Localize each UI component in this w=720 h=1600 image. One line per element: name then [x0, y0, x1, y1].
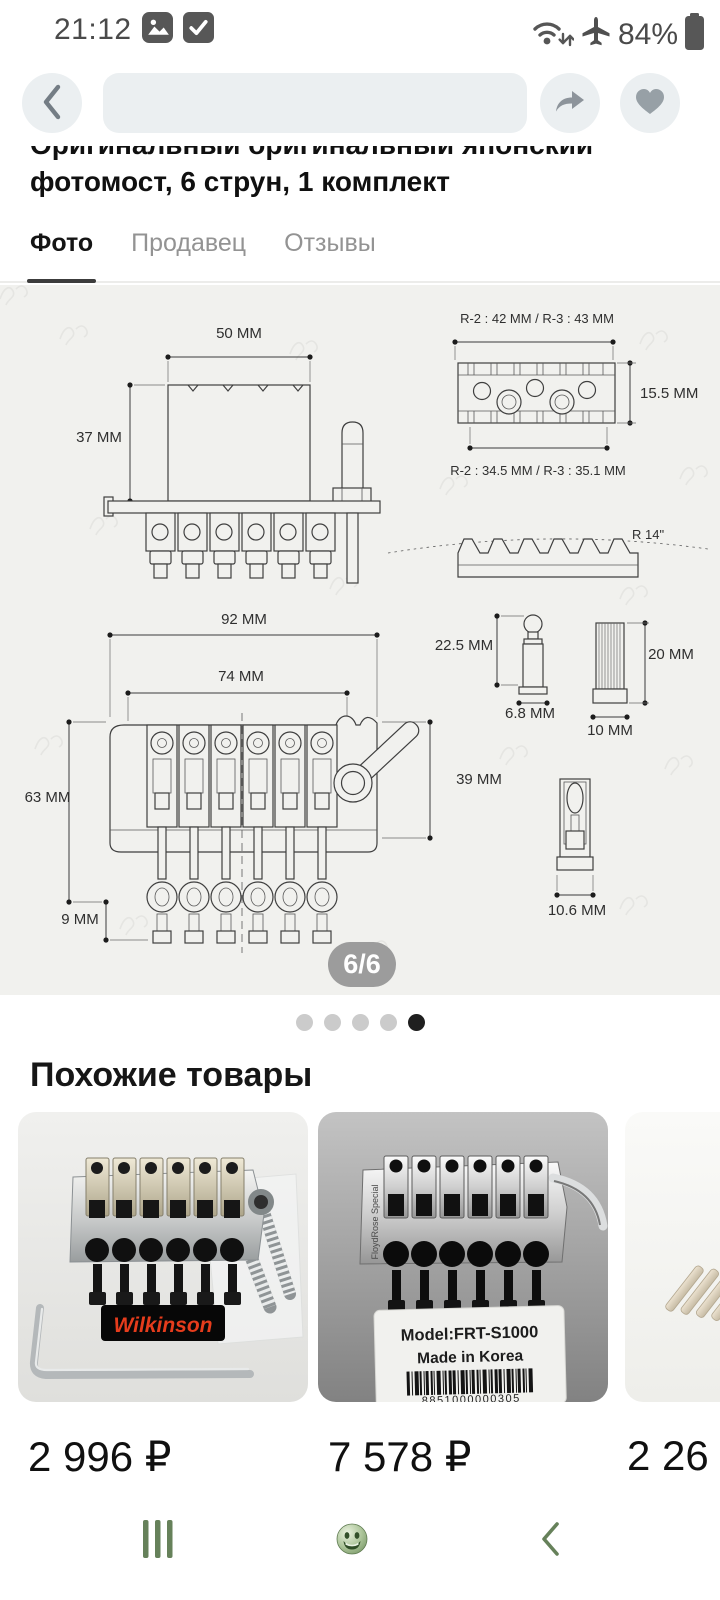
product-title: Оригинальный оригинальный японский фотом… — [30, 146, 680, 204]
product-photo-floydrose: FloydRose Special Model:FRT-S1000 Made i… — [318, 1112, 608, 1402]
product-title-line1: Оригинальный оригинальный японский — [30, 146, 680, 163]
similar-product-card-1[interactable]: Wilkinson — [18, 1112, 308, 1402]
dim-nut-height: 15.5 MM — [640, 385, 720, 402]
tab-seller[interactable]: Продавец — [131, 205, 246, 281]
share-button[interactable] — [540, 73, 600, 133]
status-bar: 21:12 84% — [0, 0, 720, 56]
dim-top-width: 92 MM — [184, 611, 304, 628]
chevron-left-icon — [40, 84, 64, 123]
share-arrow-icon — [553, 87, 587, 120]
origin-text: Made in Korea — [417, 1348, 524, 1368]
image-notification-icon — [142, 12, 173, 48]
back-button[interactable] — [22, 73, 82, 133]
dim-fret-radius: R 14" — [632, 527, 712, 542]
battery-percent: 84% — [618, 18, 678, 52]
back-nav-button[interactable] — [514, 1504, 586, 1576]
product-photo-wilkinson: Wilkinson — [18, 1112, 308, 1402]
similar-product-card-2[interactable]: FloydRose Special Model:FRT-S1000 Made i… — [318, 1112, 608, 1402]
similar-price-2: 7 578 ₽ — [328, 1432, 472, 1481]
dim-side-width: 50 MM — [179, 325, 299, 342]
dim-stud-height: 22.5 MM — [414, 637, 514, 654]
dim-stud-diameter: 6.8 MM — [480, 705, 580, 722]
similar-product-card-3[interactable] — [625, 1112, 720, 1402]
tab-bar: Фото Продавец Отзывы — [0, 205, 720, 283]
image-pagination — [0, 1014, 720, 1031]
battery-icon — [683, 12, 706, 57]
dim-depth: 39 MM — [429, 771, 529, 788]
wilkinson-logo-text: Wilkinson — [114, 1314, 213, 1337]
dim-tuner-offset: 9 MM — [30, 911, 130, 928]
tab-photo[interactable]: Фото — [30, 205, 93, 281]
tab-reviews[interactable]: Отзывы — [284, 205, 376, 281]
pagination-dot[interactable] — [324, 1014, 341, 1031]
model-text: Model:FRT-S1000 — [401, 1323, 539, 1345]
checkmark-notification-icon — [183, 12, 214, 48]
image-counter-badge: 6/6 — [328, 942, 396, 987]
dim-nut-top: R-2 : 42 MM / R-3 : 43 MM — [417, 311, 657, 326]
favorite-button[interactable] — [620, 73, 680, 133]
home-button[interactable] — [316, 1504, 388, 1576]
product-title-line2: фотомост, 6 струн, 1 комплект — [30, 163, 680, 200]
search-input[interactable] — [103, 73, 527, 133]
barcode-number: 8851000000305 — [422, 1393, 521, 1402]
status-time: 21:12 — [54, 13, 132, 47]
stud-insert-drawing — [494, 613, 649, 719]
bottom-nav-bar — [0, 1490, 720, 1600]
dim-screw-spacing: 74 MM — [181, 668, 301, 685]
recent-apps-button[interactable] — [122, 1504, 194, 1576]
wifi-icon — [530, 14, 574, 55]
similar-price-3: 2 26 — [627, 1432, 709, 1480]
side-view-drawing — [104, 354, 380, 583]
dim-length: 63 MM — [0, 789, 95, 806]
product-image-viewer[interactable]: 50 MM 37 MM R-2 : 42 MM / R-3 : 43 MM 15… — [0, 285, 720, 995]
pagination-dot[interactable] — [296, 1014, 313, 1031]
smiley-home-icon — [335, 1522, 369, 1559]
pagination-dot[interactable] — [380, 1014, 397, 1031]
technical-drawing — [0, 285, 720, 995]
dim-insert-height: 20 MM — [621, 646, 720, 663]
pagination-dot[interactable] — [352, 1014, 369, 1031]
screen: 21:12 84% — [0, 0, 720, 1600]
dim-saddle-width: 10.6 MM — [527, 902, 627, 919]
heart-icon — [634, 88, 666, 119]
pagination-dot-active[interactable] — [408, 1014, 425, 1031]
saddle-drawing — [554, 779, 595, 898]
airplane-mode-icon — [579, 15, 613, 54]
floydrose-side-text: FloydRose Special — [370, 1184, 380, 1259]
back-nav-chevron-icon — [539, 1521, 561, 1560]
dim-nut-bottom: R-2 : 34.5 MM / R-3 : 35.1 MM — [408, 463, 668, 478]
recent-apps-icon — [143, 1520, 173, 1561]
similar-products-heading: Похожие товары — [30, 1056, 312, 1095]
similar-price-1: 2 996 ₽ — [28, 1432, 172, 1481]
dim-insert-diameter: 10 MM — [560, 722, 660, 739]
dim-side-height: 37 MM — [39, 429, 159, 446]
product-photo-pins — [625, 1112, 720, 1402]
